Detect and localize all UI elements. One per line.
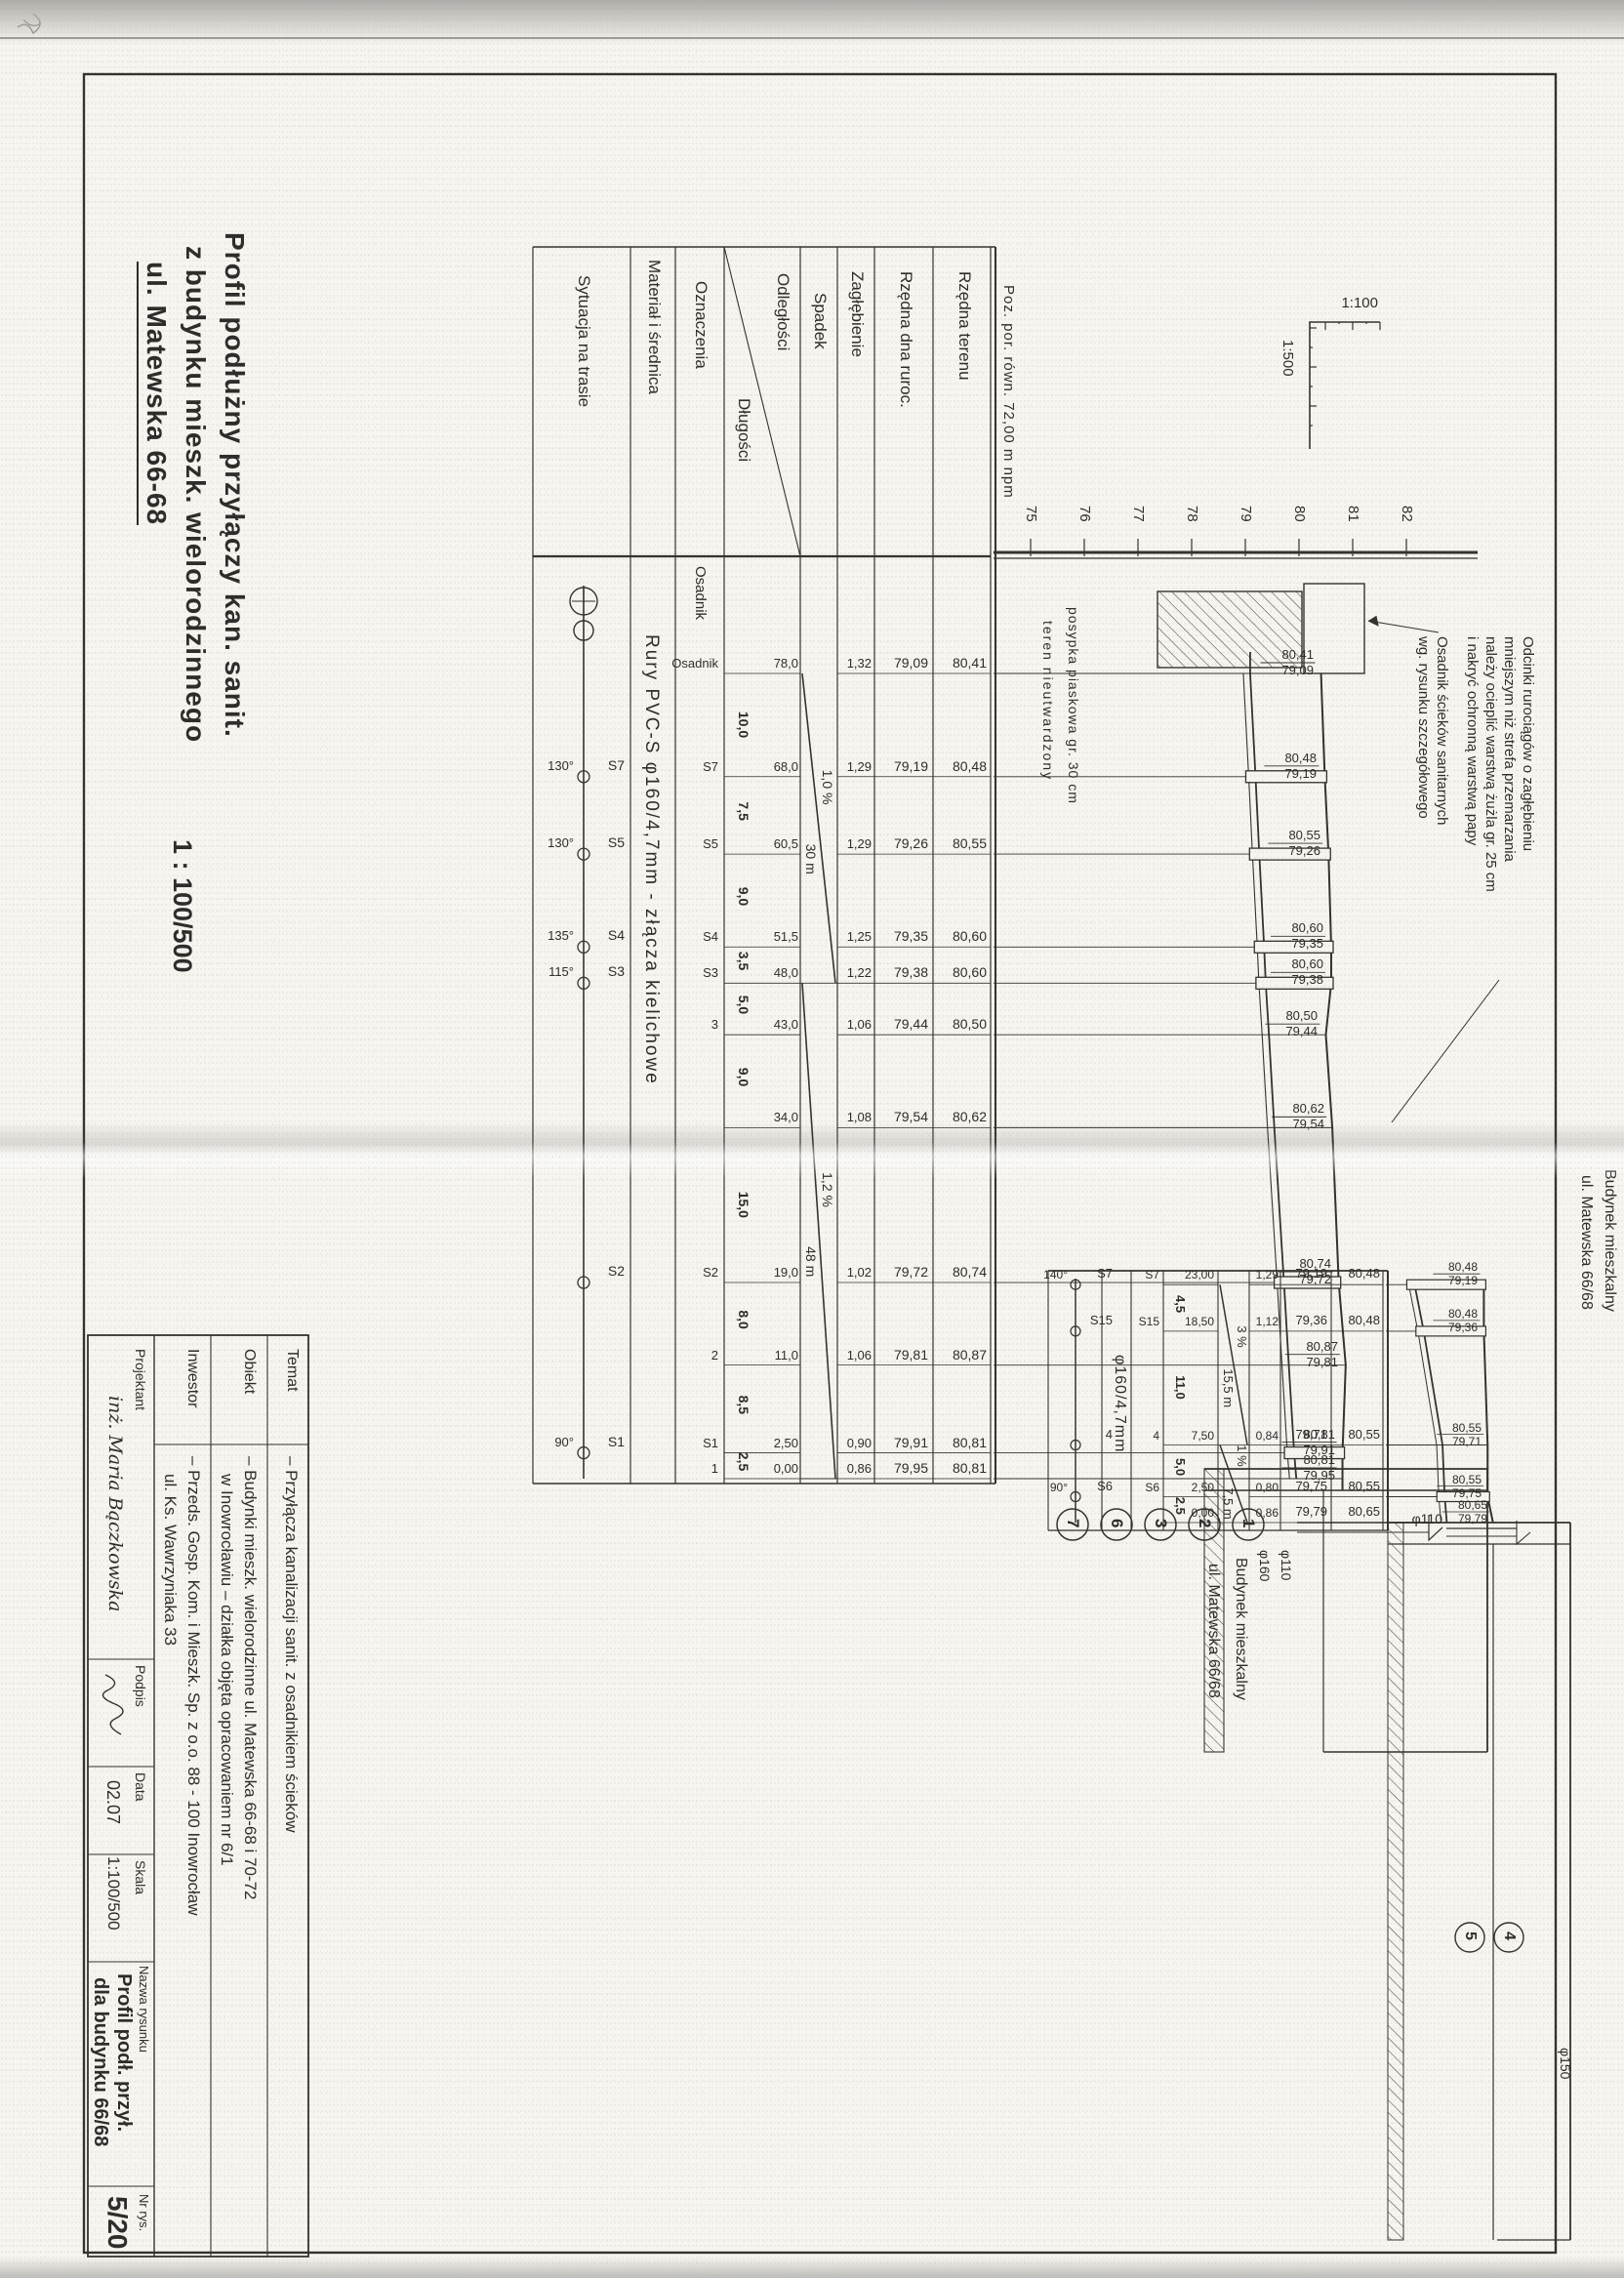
sheet-border xyxy=(84,74,1556,2253)
table-value-odleglosc: 60,5 xyxy=(774,837,798,852)
situation-well-label-lower: 4 xyxy=(1106,1428,1113,1443)
slope-length: 48 m xyxy=(803,1246,819,1277)
table-value-rzedna-terenu-lower: 80,65 xyxy=(1348,1505,1380,1520)
osadnik-tank-hatch xyxy=(1157,591,1302,668)
sheet-title-line3: ul. Matewska 66-68 xyxy=(137,262,172,525)
profile-elevation-terrain: 80,41 xyxy=(1281,648,1314,663)
table-value-oznaczenie: S1 xyxy=(703,1437,718,1451)
table-value-zaglebienie: 1,08 xyxy=(847,1111,872,1125)
table-value-rzedna-terenu: 80,62 xyxy=(953,1109,987,1124)
situation-well-label-lower: S15 xyxy=(1090,1314,1113,1328)
situation-well-label: S5 xyxy=(608,834,625,850)
table-value-dlugosc-lower: 4,5 xyxy=(1172,1295,1187,1313)
table-value-rzedna-terenu-lower: 80,55 xyxy=(1348,1480,1380,1494)
scale-indicator-horizontal: 1:500 xyxy=(1279,340,1296,377)
table-value-rzedna-dna: 79,19 xyxy=(894,758,928,774)
profile-elevation-terrain: 80,87 xyxy=(1306,1340,1338,1355)
table-value-rzedna-terenu: 80,50 xyxy=(953,1016,987,1032)
table-value-zaglebienie: 1,32 xyxy=(847,657,872,671)
profile-elevation-terrain: 80,48 xyxy=(1285,752,1318,766)
ground-line-lower xyxy=(1483,1284,1492,1523)
pipe-label-lower-110: φ110 xyxy=(1412,1511,1442,1526)
axis-elevation-label: 78 xyxy=(1184,506,1200,522)
table-value-rzedna-dna: 79,81 xyxy=(894,1347,928,1363)
slope-value-lower: 3 % xyxy=(1234,1325,1248,1347)
note-insulation-line2: mniejszym niż strefa przemarzania xyxy=(1501,636,1518,862)
titleblock-inwestor-line2: ul. Ks. Wawrzyniaka 33 xyxy=(160,1474,180,1646)
ground-note-terrain: teren nieutwardzony xyxy=(1040,621,1056,781)
line xyxy=(802,673,835,983)
slope-value-lower: 1 % xyxy=(1234,1444,1248,1466)
sheet-title-line2: z budynku mieszk. wielorodzinnego xyxy=(180,246,211,743)
scanned-drawing-page: Profil podłużny przyłączy kan. sanit. z … xyxy=(0,0,1624,2278)
drawing-sheet: Profil podłużny przyłączy kan. sanit. z … xyxy=(0,0,1624,2278)
table-value-oznaczenie: S4 xyxy=(703,930,718,945)
table-value-dlugosc: 7,5 xyxy=(736,801,751,820)
note-insulation-line3: należy ocieplić warstwą żużla gr. 25 cm xyxy=(1482,636,1499,892)
slope-length-lower: 15,5 m xyxy=(1220,1368,1235,1407)
titleblock-obiekt-line2: w Inowrocławiu – działka objęta opracowa… xyxy=(217,1474,236,1866)
table-value-oznaczenie: S2 xyxy=(703,1266,718,1281)
axis-elevation-label: 76 xyxy=(1076,506,1093,522)
callout-number-lower: 4 xyxy=(1500,1932,1518,1940)
table-value-dlugosc: 10,0 xyxy=(736,712,751,738)
table-value-rzedna-terenu-lower: 80,55 xyxy=(1348,1428,1380,1443)
table-value-dlugosc: 9,0 xyxy=(736,1068,751,1086)
building-label-lower-line2: ul. Matewska 66/68 xyxy=(1577,1175,1595,1310)
table-value-oznaczenie: S3 xyxy=(703,966,718,981)
table-value-rzedna-terenu: 80,55 xyxy=(953,835,987,851)
sheet-title-line1: Profil podłużny przyłączy kan. sanit. xyxy=(219,232,250,738)
pipe-label-upper-160: φ160 xyxy=(1257,1550,1273,1581)
table-value-odleglosc: 43,0 xyxy=(774,1018,798,1033)
table-value-dlugosc: 8,5 xyxy=(736,1396,751,1414)
axis-elevation-label: 82 xyxy=(1399,506,1415,522)
table-value-rzedna-dna: 79,09 xyxy=(894,655,928,671)
sheet-title-scale: 1 : 100/500 xyxy=(167,839,197,973)
situation-angle-label-lower: 90° xyxy=(1050,1482,1068,1495)
leader-insulation-note xyxy=(1392,980,1499,1122)
table-value-zaglebienie: 1,25 xyxy=(847,930,872,945)
table-value-zaglebienie-lower: 1,12 xyxy=(1256,1316,1279,1329)
table-value-dlugosc: 15,0 xyxy=(736,1192,751,1218)
situation-angle-label: 130° xyxy=(548,759,574,774)
table-value-rzedna-dna: 79,54 xyxy=(894,1109,928,1124)
titleblock-obiekt-label: Obiekt xyxy=(240,1349,258,1394)
profile-elevation-terrain-lower: 80,65 xyxy=(1458,1499,1487,1513)
table-value-odleglosc: 48,0 xyxy=(774,966,798,981)
row-header-oznaczenia: Oznaczenia xyxy=(691,281,710,369)
titleblock-temat: – Przyłącza kanalizacji sanit. z osadnik… xyxy=(281,1456,301,1833)
profile-elevation-terrain-lower: 80,48 xyxy=(1448,1308,1478,1322)
table-value-odleglosc-lower: 23,00 xyxy=(1185,1269,1214,1282)
table-value-rzedna-dna-lower: 79,71 xyxy=(1295,1428,1327,1443)
callout-number: 6 xyxy=(1107,1519,1126,1527)
situation-angle-label: 135° xyxy=(548,929,574,944)
table-value-oznaczenie: 3 xyxy=(711,1018,718,1033)
ground-note-bedding: posypka piaskowa gr. 30 cm xyxy=(1066,607,1081,804)
profile-elevation-terrain: 80,60 xyxy=(1291,957,1323,972)
building-label-upper-line1: Budynek mieszkalny xyxy=(1232,1558,1249,1700)
leader-osadnik-note xyxy=(1368,621,1439,632)
table-value-zaglebienie: 0,90 xyxy=(847,1437,872,1451)
pipe-label-lower-150: φ150 xyxy=(1558,2048,1573,2079)
titleblock-skala-value: 1:100/500 xyxy=(103,1856,123,1931)
table-value-dlugosc: 3,5 xyxy=(736,952,751,970)
note-insulation-line4: i nakryć ochronną warstwą papy xyxy=(1464,636,1481,845)
table-value-zaglebienie: 1,29 xyxy=(847,760,872,775)
line xyxy=(802,983,835,1479)
titleblock-inwestor-label: Inwestor xyxy=(183,1349,201,1407)
table-value-rzedna-dna: 79,72 xyxy=(894,1264,928,1280)
note-insulation-line1: Odcinki rurociągów o zagłębieniu xyxy=(1520,636,1536,851)
building-label-upper-line2: ul. Matewska 66/68 xyxy=(1204,1564,1222,1698)
table-value-rzedna-dna: 79,44 xyxy=(894,1016,928,1032)
titleblock-skala-label: Skala xyxy=(133,1860,148,1894)
table-value-odleglosc: 68,0 xyxy=(774,760,798,775)
table-value-rzedna-terenu: 80,60 xyxy=(953,928,987,944)
leader-arrowhead xyxy=(1368,616,1378,626)
titleblock-data-label: Data xyxy=(133,1772,148,1802)
profile-elevation-invert: 79,81 xyxy=(1306,1356,1338,1370)
table-value-rzedna-dna: 79,35 xyxy=(894,928,928,944)
building-label-lower-line1: Budynek mieszkalny xyxy=(1601,1169,1618,1312)
titleblock-nazwa-line1: Profil podł. przył. xyxy=(112,1973,135,2132)
riser-funnel-lower xyxy=(1517,1521,1530,1544)
note-osadnik-line2: wg. rysunku szczegółowego xyxy=(1415,636,1432,819)
row-header-dlugosci: Długości xyxy=(734,398,753,462)
titleblock-data-value: 02.07 xyxy=(102,1780,123,1824)
profile-elevation-invert-lower: 79,79 xyxy=(1458,1513,1487,1526)
axis-elevation-label: 75 xyxy=(1023,506,1039,522)
table-value-odleglosc: 11,0 xyxy=(775,1349,798,1363)
table-value-rzedna-terenu: 80,81 xyxy=(953,1460,987,1476)
table-value-oznaczenie-lower: S7 xyxy=(1145,1269,1159,1282)
titleblock-nr-value: 5/20 xyxy=(101,2196,133,2250)
titleblock-nazwa-label: Nazwa rysunku xyxy=(136,1966,150,2053)
profile-elevation-invert: 79,26 xyxy=(1289,844,1321,859)
pipe-bottom-upper xyxy=(1243,673,1289,1479)
table-value-oznaczenie-lower: 4 xyxy=(1153,1430,1159,1444)
table-value-dlugosc: 8,0 xyxy=(736,1310,751,1328)
scale-indicator-vertical: 1:100 xyxy=(1341,295,1378,311)
signature-mark xyxy=(103,1675,124,1734)
situation-well-label: S7 xyxy=(608,757,625,773)
table-value-rzedna-dna: 79,26 xyxy=(894,835,928,851)
table-value-oznaczenie-osadnik: Osadnik xyxy=(692,566,709,620)
table-value-odleglosc-lower: 0,00 xyxy=(1192,1507,1214,1521)
profile-elevation-terrain: 80,55 xyxy=(1289,829,1321,843)
datum-label: Poz. por. równ. 72,00 m npm xyxy=(1000,285,1017,499)
situation-well-label: S1 xyxy=(608,1434,625,1449)
axis-elevation-label: 79 xyxy=(1238,506,1254,522)
table-value-oznaczenie: 1 xyxy=(711,1462,718,1477)
titleblock-nazwa-line2: dla budynku 66/68 xyxy=(89,1977,111,2146)
table-value-odleglosc: 2,50 xyxy=(774,1437,798,1451)
table-value-rzedna-dna-lower: 79,19 xyxy=(1295,1267,1327,1281)
axis-elevation-label: 77 xyxy=(1130,506,1147,522)
titleblock-nr-label: Nr rys. xyxy=(136,2194,150,2231)
table-value-dlugosc: 2,5 xyxy=(736,1452,751,1471)
scale-ruler xyxy=(1310,322,1380,449)
profile-elevation-terrain: 80,81 xyxy=(1303,1453,1335,1468)
table-value-rzedna-dna: 79,91 xyxy=(894,1435,928,1450)
row-header-odleglosci: Odległości xyxy=(773,273,792,350)
table-value-zaglebienie: 1,02 xyxy=(847,1266,872,1281)
table-value-rzedna-terenu: 80,81 xyxy=(953,1435,987,1450)
table-value-rzedna-dna: 79,38 xyxy=(894,964,928,980)
table-value-rzedna-dna-lower: 79,79 xyxy=(1295,1505,1327,1520)
row-header-rzedna-terenu: Rzędna terenu xyxy=(954,271,974,381)
table-value-rzedna-terenu: 80,41 xyxy=(953,655,987,671)
slope-length-lower: 7,5 m xyxy=(1220,1487,1235,1520)
titleblock-obiekt-line1: – Budynki mieszk. wielorodzinne ul. Mate… xyxy=(240,1456,260,1900)
table-value-odleglosc-lower: 18,50 xyxy=(1185,1316,1214,1329)
profile-elevation-invert-lower: 79,19 xyxy=(1448,1275,1478,1288)
table-value-zaglebienie: 1,06 xyxy=(847,1349,872,1363)
table-value-rzedna-dna-lower: 79,75 xyxy=(1295,1480,1327,1494)
table-value-rzedna-terenu: 80,87 xyxy=(953,1347,987,1363)
table-value-odleglosc-lower: 7,50 xyxy=(1192,1430,1214,1444)
table-value-rzedna-terenu-lower: 80,48 xyxy=(1348,1267,1380,1281)
table-value-dlugosc-lower: 11,0 xyxy=(1172,1375,1187,1400)
profile-elevation-terrain-lower: 80,55 xyxy=(1452,1474,1482,1487)
profile-elevation-invert: 79,44 xyxy=(1286,1025,1319,1039)
table-value-rzedna-terenu: 80,48 xyxy=(953,758,987,774)
table-value-rzedna-dna: 79,95 xyxy=(894,1460,928,1476)
pipe-invert-upper xyxy=(1250,673,1296,1479)
profile-elevation-invert: 79,35 xyxy=(1291,937,1323,952)
table-value-odleglosc-lower: 2,50 xyxy=(1192,1482,1214,1495)
slope-length: 30 m xyxy=(803,844,819,875)
profile-elevation-invert: 79,19 xyxy=(1285,767,1318,782)
profile-elevation-invert: 79,38 xyxy=(1291,973,1323,988)
axis-elevation-label: 81 xyxy=(1345,506,1361,522)
profile-elevation-terrain: 80,50 xyxy=(1286,1009,1319,1024)
table-value-dlugosc-lower: 2,5 xyxy=(1172,1497,1187,1515)
table-value-odleglosc: 19,0 xyxy=(774,1266,798,1281)
table-value-rzedna-dna-lower: 79,36 xyxy=(1295,1314,1327,1328)
table-value-oznaczenie-lower: S15 xyxy=(1139,1316,1159,1329)
profile-elevation-terrain: 80,60 xyxy=(1291,921,1323,936)
callout-number-lower: 5 xyxy=(1461,1932,1479,1940)
scan-paper-edge xyxy=(0,37,1624,39)
callout-number: 7 xyxy=(1063,1519,1082,1527)
row-header-material: Materiał i średnica xyxy=(644,260,664,394)
row-header-spadek: Spadek xyxy=(810,293,830,349)
table-value-zaglebienie: 1,22 xyxy=(847,966,872,981)
situation-angle-label: 90° xyxy=(554,1436,574,1450)
table-value-odleglosc: 51,5 xyxy=(774,930,798,945)
table-value-zaglebienie: 1,06 xyxy=(847,1018,872,1033)
pipe-label-upper-110: φ110 xyxy=(1279,1550,1294,1580)
table-value-dlugosc: 9,0 xyxy=(736,887,751,906)
profile-elevation-terrain-lower: 80,48 xyxy=(1448,1261,1478,1275)
table-value-zaglebienie-lower: 0,86 xyxy=(1256,1507,1279,1521)
scan-edge-shadow-bottom xyxy=(0,2257,1624,2278)
table-value-oznaczenie: S7 xyxy=(703,760,718,775)
row-header-rzedna-dna: Rzędna dna ruroc. xyxy=(896,271,915,408)
table-value-zaglebienie: 0,86 xyxy=(847,1462,872,1477)
table-value-dlugosc-lower: 5,0 xyxy=(1172,1458,1187,1476)
table-value-rzedna-terenu: 80,60 xyxy=(953,964,987,980)
material-value-lower: φ160/4,7mm xyxy=(1111,1355,1128,1452)
situation-angle-label-lower: 140° xyxy=(1043,1269,1068,1282)
situation-well-label-lower: S6 xyxy=(1097,1480,1113,1494)
slope-value: 1,2 % xyxy=(820,1172,835,1207)
note-osadnik-line1: Osadnik ścieków sanitarnych xyxy=(1434,636,1450,825)
row-header-sytuacja: Sytuacja na trasie xyxy=(574,275,593,407)
situation-angle-label: 130° xyxy=(548,836,574,851)
slope-value: 1,0 % xyxy=(820,770,835,805)
building-foundation-hatch-lower xyxy=(1388,1523,1403,2240)
table-value-odleglosc: 78,0 xyxy=(774,657,798,671)
table-value-rzedna-terenu: 80,74 xyxy=(953,1264,987,1280)
titleblock-temat-label: Temat xyxy=(283,1349,301,1392)
profile-elevation-invert: 79,54 xyxy=(1293,1118,1325,1132)
table-value-zaglebienie-lower: 0,84 xyxy=(1256,1430,1279,1444)
profile-elevation-terrain: 80,62 xyxy=(1293,1102,1325,1117)
titleblock-projektant-name: inż. Maria Bączkowska xyxy=(103,1396,125,1611)
situation-well-label: S4 xyxy=(608,927,625,943)
table-value-oznaczenie-lower: S6 xyxy=(1145,1482,1159,1495)
table-value-oznaczenie: Osadnik xyxy=(671,657,718,671)
table-value-odleglosc: 34,0 xyxy=(774,1111,798,1125)
situation-well-label: S3 xyxy=(608,963,625,979)
table-value-rzedna-terenu-lower: 80,48 xyxy=(1348,1314,1380,1328)
table-value-zaglebienie: 1,29 xyxy=(847,837,872,852)
situation-well-label-lower: S7 xyxy=(1097,1267,1113,1281)
table-value-zaglebienie-lower: 0,80 xyxy=(1256,1482,1279,1495)
table-value-zaglebienie-lower: 1,29 xyxy=(1256,1269,1279,1282)
profile-elevation-invert: 79,09 xyxy=(1281,664,1314,678)
titleblock-inwestor-line1: – Przeds. Gosp. Kom. i Mieszk. Sp. z o.o… xyxy=(183,1456,203,1916)
callout-number: 3 xyxy=(1151,1519,1170,1527)
situation-well-label: S2 xyxy=(608,1263,625,1279)
profile-elevation-invert-lower: 79,71 xyxy=(1452,1436,1482,1449)
table-value-oznaczenie: S5 xyxy=(703,837,718,852)
table-value-odleglosc: 0,00 xyxy=(774,1462,798,1477)
material-value-upper: Rury PVC-S φ160/4,7mm - złącza kielichow… xyxy=(640,634,662,1085)
table-value-dlugosc: 5,0 xyxy=(736,996,751,1014)
titleblock-projektant-label: Projektant xyxy=(133,1349,148,1410)
situation-angle-label: 115° xyxy=(548,965,574,980)
profile-elevation-invert-lower: 79,36 xyxy=(1448,1322,1478,1335)
row-header-zaglebienie: Zagłębienie xyxy=(847,271,867,357)
table-value-oznaczenie: 2 xyxy=(711,1349,718,1363)
profile-elevation-terrain-lower: 80,55 xyxy=(1452,1422,1482,1436)
axis-elevation-label: 80 xyxy=(1291,506,1308,522)
titleblock-podpis-label: Podpis xyxy=(133,1665,148,1707)
